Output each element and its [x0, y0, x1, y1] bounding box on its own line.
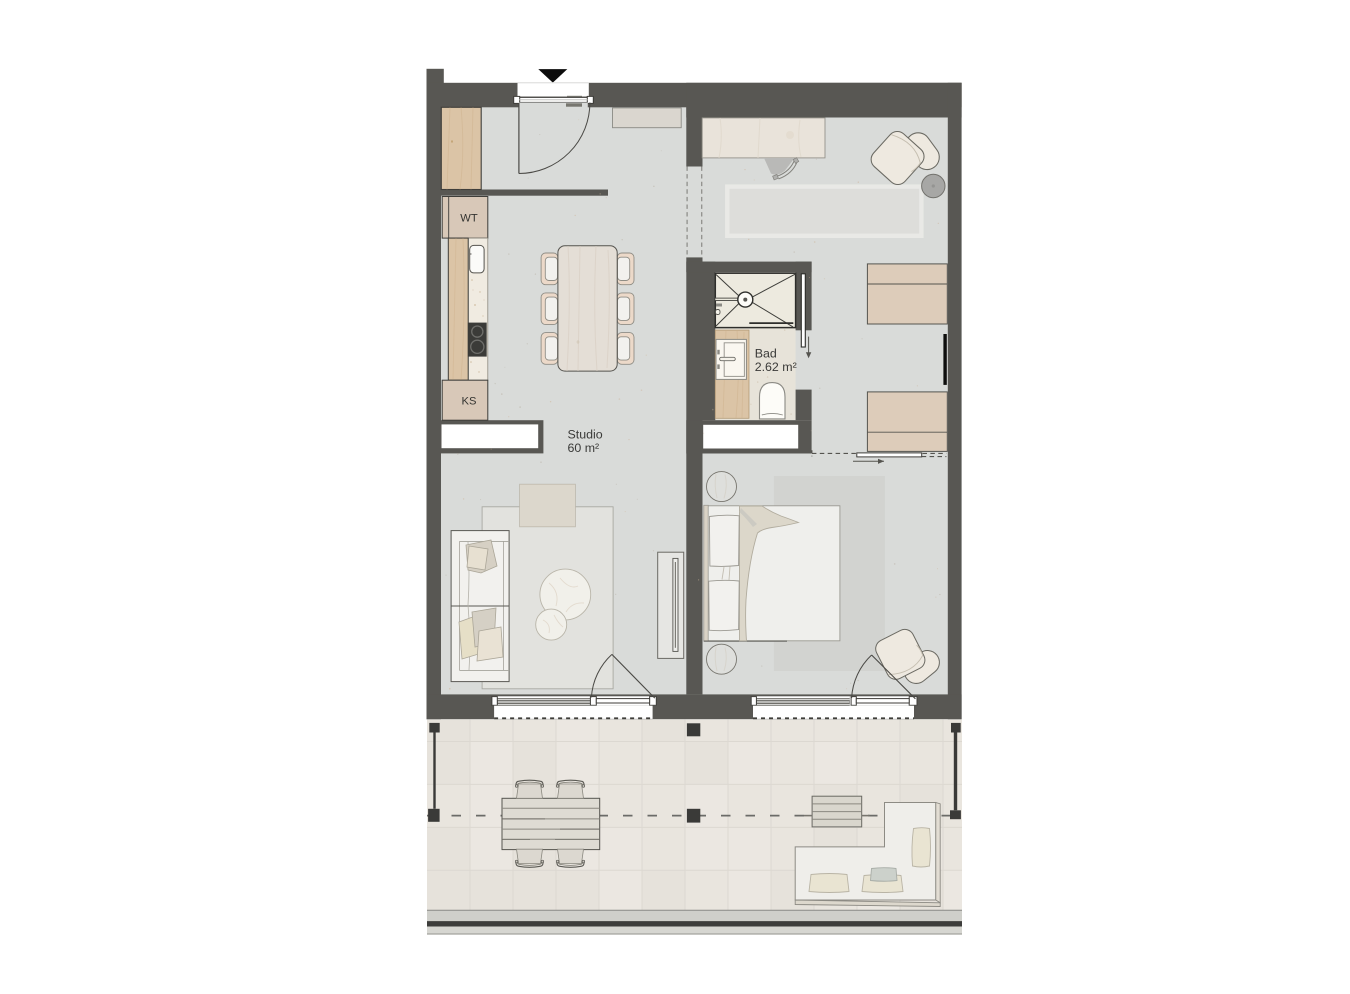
svg-text:KS: KS — [462, 396, 477, 408]
svg-text:2.62 m²: 2.62 m² — [755, 360, 797, 374]
svg-text:WT: WT — [460, 213, 478, 225]
svg-text:Bad: Bad — [755, 346, 777, 360]
svg-text:60 m²: 60 m² — [568, 441, 600, 455]
svg-text:Studio: Studio — [568, 428, 603, 442]
